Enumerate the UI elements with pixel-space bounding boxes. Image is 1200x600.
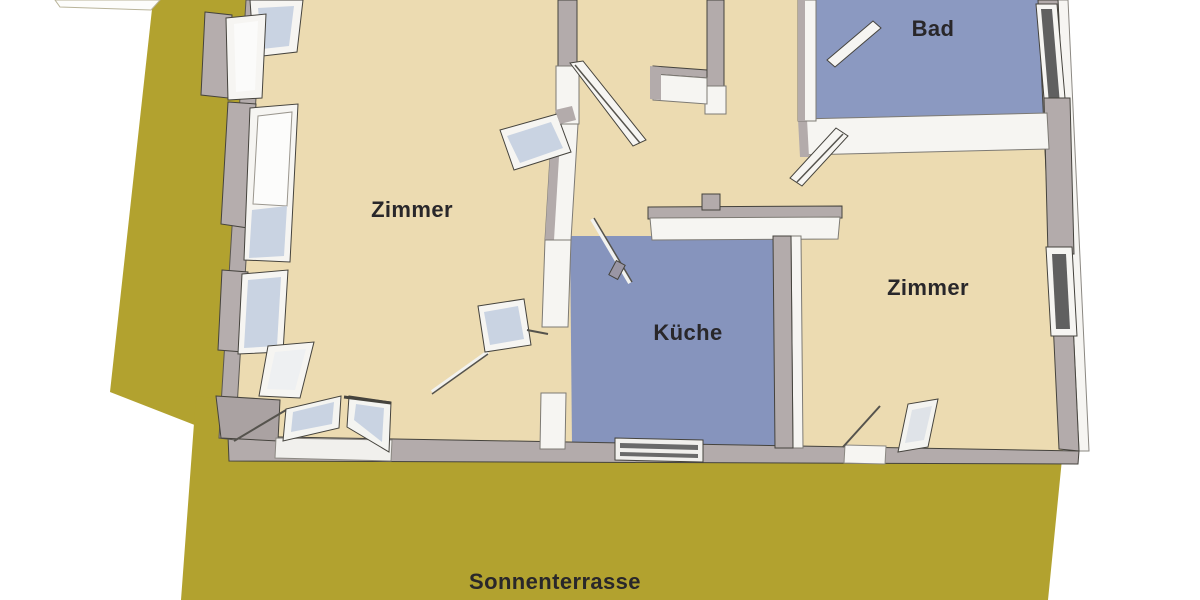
window3-glass [244, 277, 281, 348]
kitchen-left-wall-lower [540, 393, 566, 449]
window2-glass-upper [253, 112, 292, 206]
kitchen-left-wall-upper [542, 240, 571, 327]
floorplan-drawing [0, 0, 1200, 600]
window2-glass-lower [249, 206, 287, 258]
stub-wall-end [650, 66, 661, 100]
room-label-bad: Bad [912, 16, 955, 42]
kitchen-side-door-glass [484, 306, 524, 345]
stub-wall-face [653, 74, 707, 104]
floorplan-canvas: Zimmer Küche Bad Zimmer Sonnenterrasse [0, 0, 1200, 600]
kitchen-right-wall [773, 236, 793, 448]
cutoff-structure-sliver [55, 0, 160, 10]
kitchen-terrace-door-frame [615, 438, 703, 462]
hall-left-wall-upper [558, 0, 577, 68]
hall-right-doorframe [705, 86, 726, 114]
hall-right-wall [707, 0, 724, 88]
bath-left-wall-cap [798, 0, 805, 121]
right-terrace-door-opening [844, 445, 886, 464]
room-label-zimmer-left: Zimmer [371, 197, 453, 223]
right-wall-pilaster [1044, 98, 1074, 254]
room-label-kueche: Küche [653, 320, 722, 346]
window1-glass [234, 21, 258, 92]
room-label-zimmer-right: Zimmer [887, 275, 969, 301]
kitchen-top-wall-stub [702, 194, 720, 210]
kitchen-top-wall-face [650, 217, 840, 240]
terrace-label-sonnenterrasse: Sonnenterrasse [469, 569, 641, 595]
